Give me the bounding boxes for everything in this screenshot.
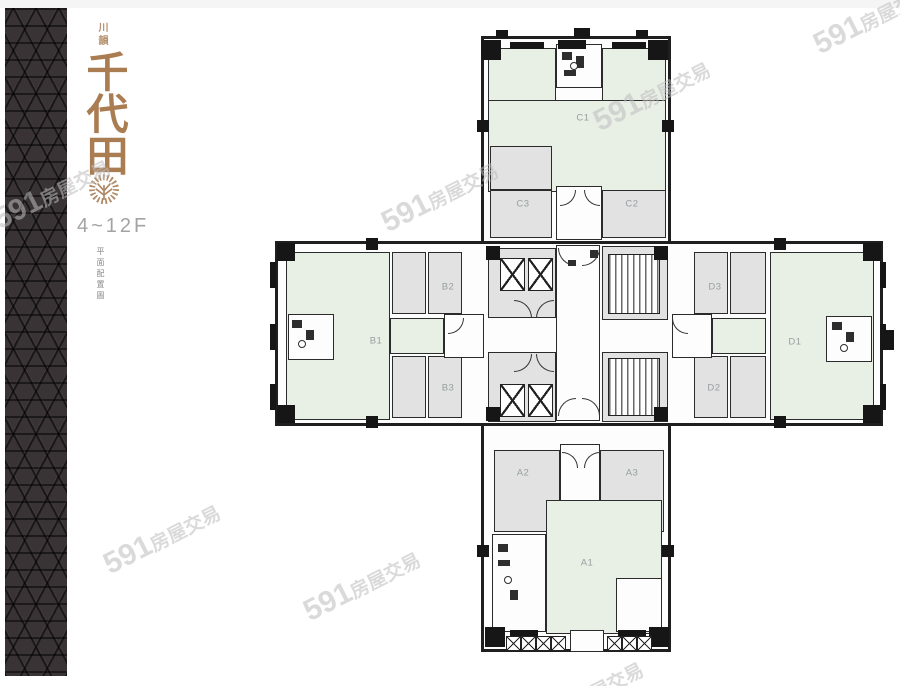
structural-column [277, 405, 295, 423]
unit-label-B1: B1 [370, 336, 383, 347]
room [392, 252, 426, 314]
elevator-shaft [528, 384, 553, 417]
unit-label-D1: D1 [788, 337, 801, 348]
structural-column [486, 407, 500, 421]
wall-segment [496, 30, 508, 38]
toilet-fixture [504, 576, 512, 584]
balcony-unit-box [622, 636, 637, 651]
elevator-shaft [500, 258, 525, 291]
structural-column [481, 40, 501, 60]
unit-label-D3: D3 [708, 282, 721, 293]
structural-column [774, 238, 786, 250]
structural-column [366, 416, 378, 428]
unit-label-C1: C1 [576, 113, 589, 124]
stairwell [608, 254, 660, 314]
structural-column [654, 246, 668, 260]
unit-label-B2: B2 [442, 282, 455, 293]
wall-segment [270, 262, 276, 288]
wall-segment [612, 42, 646, 49]
wall-segment [510, 42, 544, 49]
unit-label-C3: C3 [516, 199, 529, 210]
wall-segment [884, 330, 894, 350]
structural-column [477, 120, 489, 132]
wall-segment [270, 324, 276, 350]
toilet-fixture [298, 340, 306, 348]
room [490, 190, 552, 238]
wall-segment [574, 28, 590, 38]
structural-column [485, 627, 505, 647]
balcony-unit-box [521, 636, 536, 651]
room [570, 630, 604, 652]
bath-fixture [846, 332, 854, 342]
bath-fixture [292, 320, 302, 328]
room [602, 190, 666, 238]
structural-column [486, 246, 500, 260]
structural-column [774, 416, 786, 428]
structural-column [654, 407, 668, 421]
toilet-fixture [840, 344, 848, 352]
elevator-shaft [500, 384, 525, 417]
balcony-unit-box [607, 636, 622, 651]
balcony-unit-box [637, 636, 652, 651]
room [490, 146, 552, 190]
balcony-unit-box [536, 636, 551, 651]
room [392, 356, 426, 418]
unit-label-A3: A3 [626, 468, 639, 479]
wall-segment [636, 30, 648, 38]
floorplan-drawing: C1C3C2B2B1B3D3D1D2A2A3A1 [0, 0, 900, 686]
stairwell [608, 358, 660, 416]
bath-fixture [832, 322, 842, 330]
wall-segment [880, 384, 886, 410]
bath-fixture [562, 52, 572, 60]
structural-column [649, 627, 669, 647]
balcony-unit-box [506, 636, 521, 651]
bath-fixture [498, 544, 508, 552]
unit-label-B3: B3 [442, 383, 455, 394]
room [712, 318, 766, 354]
bath-fixture [306, 330, 314, 340]
structural-column [648, 40, 668, 60]
floorplan-page: 川韻 千代田 4~12F 平面配置圖 C1C3C2B2B1B3D3D1D2A2A… [0, 0, 900, 686]
toilet-fixture [570, 62, 578, 70]
structural-column [277, 243, 295, 261]
wall-segment [558, 40, 586, 49]
balcony-unit-box [551, 636, 566, 651]
bath-fixture [510, 590, 518, 600]
elevator-shaft [528, 258, 553, 291]
room [730, 356, 766, 418]
bath-fixture [590, 250, 598, 258]
wall-segment [270, 384, 276, 410]
wall-segment [880, 262, 886, 288]
room [730, 252, 766, 314]
room [616, 578, 662, 632]
room [390, 318, 444, 354]
structural-column [662, 545, 674, 557]
unit-label-A2: A2 [517, 468, 530, 479]
unit-label-D2: D2 [707, 383, 720, 394]
bath-fixture [568, 260, 576, 266]
unit-label-A1: A1 [581, 558, 594, 569]
structural-column [863, 405, 881, 423]
structural-column [477, 545, 489, 557]
bath-fixture [498, 560, 510, 566]
structural-column [366, 238, 378, 250]
room [556, 245, 600, 421]
unit-label-C2: C2 [625, 199, 638, 210]
structural-column [863, 243, 881, 261]
structural-column [662, 120, 674, 132]
bath-fixture [564, 70, 576, 76]
